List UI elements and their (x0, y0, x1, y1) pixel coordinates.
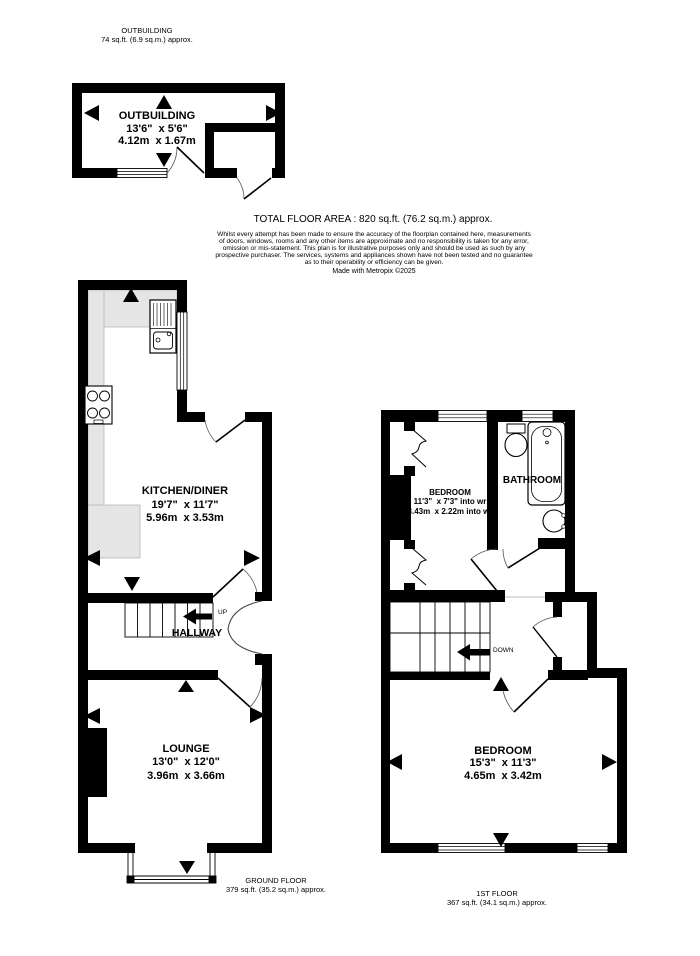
floorplan-page: OUTBUILDING 74 sq.ft. (6.9 sq.m.) approx… (0, 0, 700, 956)
room-dims-metric: 3.43m x 2.22m into wr (408, 508, 493, 516)
floorplan-drawing (0, 0, 700, 956)
up-arrow-icon (196, 614, 212, 620)
sink (543, 510, 565, 532)
front-door (228, 629, 262, 654)
credit-line: Made with Metropix ©2025 (332, 268, 415, 275)
measure-arrows (84, 288, 266, 874)
down-arrow-icon (470, 649, 490, 656)
room-label-bedroom1: BEDROOM (429, 489, 471, 497)
stairs-down-label: DOWN (493, 648, 514, 655)
arrow-up-icon (493, 677, 509, 691)
window (117, 169, 167, 178)
door-swings (205, 420, 262, 707)
staircase (390, 602, 490, 672)
hob (85, 386, 112, 424)
room-dims-metric: 3.96m x 3.66m (147, 771, 225, 783)
chimney-breast (88, 728, 107, 797)
room-label-bedroom2: BEDROOM (474, 746, 531, 758)
room-dims-metric: 5.96m x 3.53m (146, 513, 224, 525)
kitchen-window (177, 312, 187, 390)
room-label-bathroom: BATHROOM (503, 476, 561, 487)
stairs-up-label: UP (218, 610, 227, 617)
room-dims-imperial: 13'0" x 12'0" (152, 757, 220, 769)
room-dims-imperial: 19'7" x 11'7" (151, 500, 218, 512)
room-dims-imperial: 13'6" x 5'6" (126, 124, 188, 136)
arrow-right-icon (244, 550, 260, 566)
room-label-kitchen: KITCHEN/DINER (142, 486, 228, 498)
kitchen-sink-unit (150, 300, 176, 353)
arrow-up-icon (178, 680, 194, 692)
first-floor-area: 367 sq.ft. (34.1 sq.m.) approx. (447, 899, 547, 907)
front-door (228, 601, 262, 629)
bathtub (528, 422, 565, 505)
bay-window (127, 848, 216, 883)
arrow-left-icon (84, 105, 99, 121)
arrow-down-icon (179, 861, 195, 874)
room-label-lounge: LOUNGE (162, 744, 209, 756)
ground-floor-area: 379 sq.ft. (35.2 sq.m.) approx. (226, 886, 326, 894)
outbuilding-caption-title: OUTBUILDING (121, 27, 172, 35)
arrow-down-icon (156, 153, 172, 167)
outbuilding-caption-area: 74 sq.ft. (6.9 sq.m.) approx. (101, 36, 193, 44)
room-dims-imperial: 15'3" x 11'3" (469, 758, 536, 770)
room-label-hallway: HALLWAY (172, 628, 222, 639)
first-floor-title: 1ST FLOOR (476, 890, 518, 898)
room-label-outbuilding: OUTBUILDING (119, 111, 195, 123)
room-dims-imperial: 11'3" x 7'3" into wr (414, 498, 487, 506)
arrow-right-icon (602, 754, 617, 770)
total-floor-area: TOTAL FLOOR AREA : 820 sq.ft. (76.2 sq.m… (254, 215, 493, 226)
room-dims-metric: 4.12m x 1.67m (118, 136, 196, 148)
room-dims-metric: 4.65m x 3.42m (464, 771, 542, 783)
ground-floor-plan (78, 280, 272, 883)
arrow-up-icon (156, 95, 172, 109)
arrow-down-icon (124, 577, 140, 591)
toilet (505, 424, 527, 457)
disclaimer-line: as to their operability or efficiency ca… (305, 260, 444, 267)
ground-floor-title: GROUND FLOOR (245, 877, 306, 885)
